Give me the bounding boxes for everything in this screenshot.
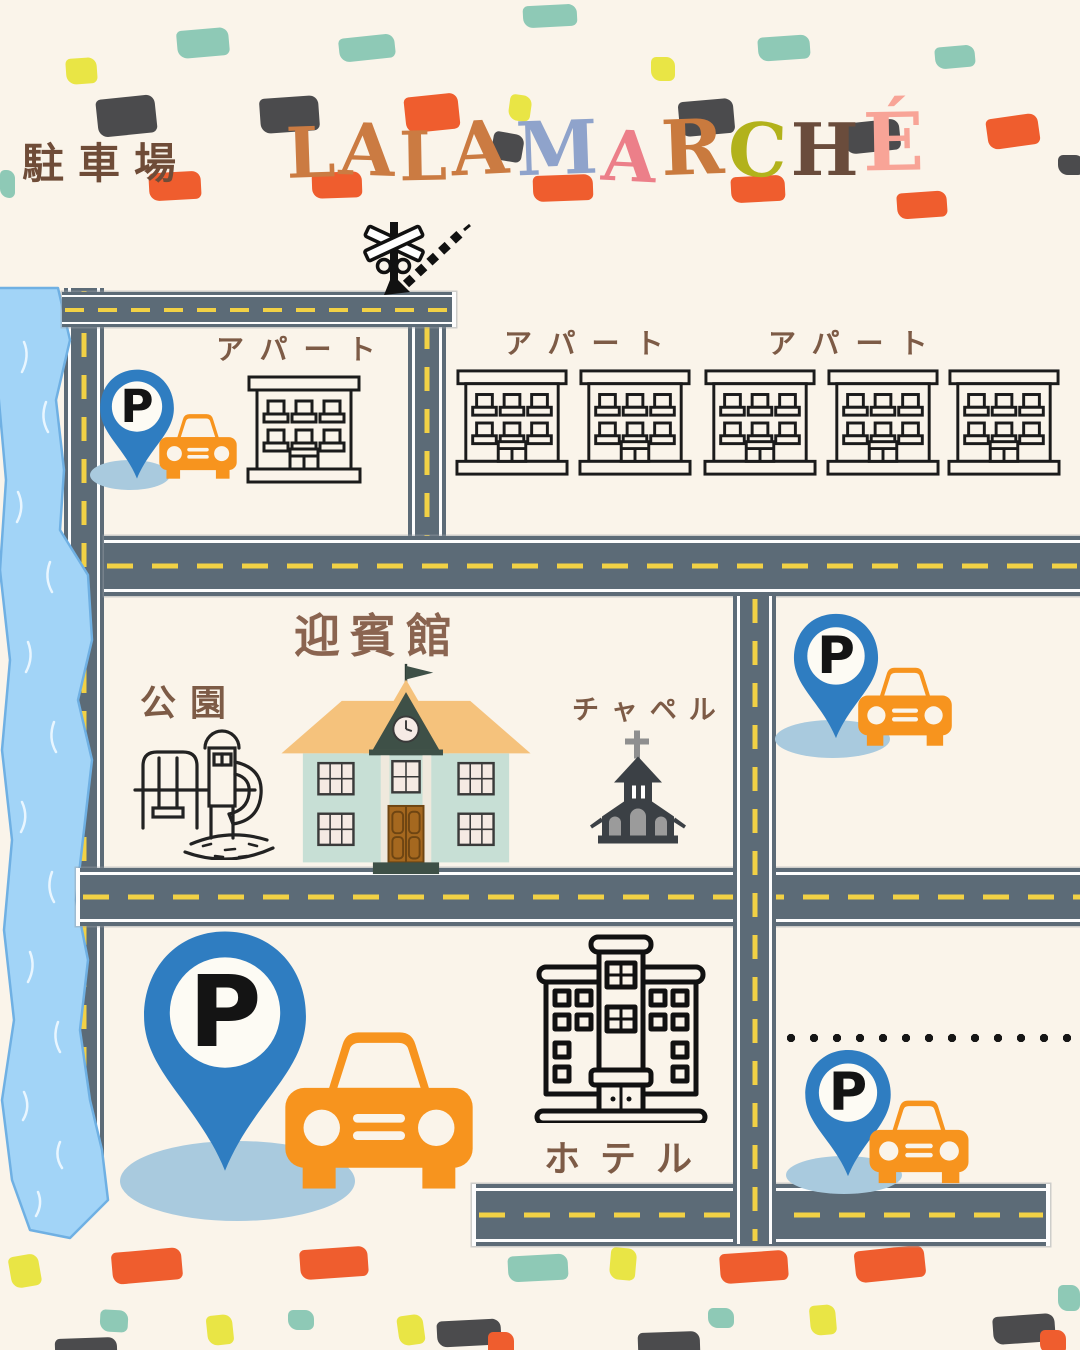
confetti-piece [396, 1313, 426, 1346]
brand-letter: L [399, 125, 448, 190]
label-apartment-2: アパート [504, 322, 679, 362]
brand-letter: M [515, 112, 599, 185]
confetti-piece [1040, 1330, 1066, 1350]
confetti-piece [708, 1308, 734, 1328]
car-icon [864, 1094, 974, 1186]
confetti-piece [638, 1331, 701, 1350]
apartment-building [826, 368, 940, 478]
confetti-piece [854, 1244, 927, 1283]
confetti-piece [55, 1337, 118, 1350]
confetti-piece [99, 1309, 128, 1332]
brand-letter: A [338, 115, 396, 185]
label-hotel: ホテル [544, 1130, 712, 1182]
confetti-piece [488, 1332, 514, 1350]
park-playground-icon [133, 710, 283, 860]
hotel-building [531, 931, 711, 1123]
confetti-piece [985, 113, 1041, 151]
confetti-piece [609, 1247, 638, 1281]
brand-letter: L [285, 119, 337, 187]
parking-letter: P [189, 955, 262, 1070]
label-chapel: チャペル [572, 688, 728, 727]
parking-spot-northwest: P [88, 366, 248, 491]
parking-spot-southeast: P [786, 1046, 981, 1191]
brand-letter: R [659, 111, 725, 185]
apartment-building [245, 375, 363, 485]
confetti-piece [299, 1246, 369, 1281]
label-guest-house: 迎賓館 [294, 600, 462, 666]
road-middle-horizontal [104, 536, 1080, 596]
car-icon [853, 660, 957, 750]
road-upper-middle-vertical [408, 322, 446, 540]
confetti-piece [651, 57, 675, 81]
brand-letter: A [449, 112, 510, 185]
confetti-piece [1058, 1285, 1080, 1311]
brand-letter: A [600, 122, 658, 191]
confetti-piece [507, 1253, 568, 1282]
confetti-piece [288, 1310, 314, 1330]
confetti-piece [338, 33, 396, 63]
road-dash [752, 599, 757, 1241]
brand-letter: H [791, 116, 859, 184]
brand-letter: É [862, 103, 924, 180]
confetti-piece [111, 1247, 184, 1285]
apartment-building [578, 368, 692, 478]
road-right-vertical [733, 596, 776, 1244]
chapel-icon [588, 728, 688, 844]
label-park: 公園 [140, 674, 240, 726]
label-apartment-3: アパート [768, 322, 943, 362]
confetti-piece [65, 57, 98, 85]
apartment-building [947, 368, 1061, 478]
car-icon [272, 1022, 486, 1192]
confetti-piece [206, 1314, 235, 1347]
map-canvas: P P P P 駐車場 LALA MARCHÉ アパート アパート アパート 迎… [0, 0, 1080, 1350]
car-icon [155, 406, 241, 484]
confetti-piece [1058, 155, 1080, 175]
confetti-piece [719, 1250, 789, 1285]
parking-letter: P [829, 1062, 867, 1123]
confetti-piece [7, 1253, 42, 1290]
parking-spot-main: P [118, 923, 490, 1223]
confetti-piece [176, 27, 230, 59]
confetti-piece [896, 190, 948, 219]
parking-spot-east: P [775, 610, 965, 760]
brand-letter: C [726, 115, 787, 187]
parking-letter: P [120, 380, 153, 433]
label-parking-area: 駐車場 [22, 130, 190, 191]
road-dash [65, 308, 449, 312]
railroad-crossing-icon [360, 218, 476, 298]
confetti-piece [934, 44, 976, 69]
parking-letter: P [817, 626, 855, 686]
road-dash [83, 895, 1080, 900]
road-dash [107, 564, 1077, 569]
road-lower-horizontal [76, 868, 1080, 926]
brand-title: LALA MARCHÉ [286, 108, 866, 184]
dotted-path [786, 1033, 1076, 1043]
apartment-building [455, 368, 569, 478]
confetti-piece [0, 170, 15, 198]
label-apartment-1: アパート [216, 328, 391, 368]
road-dash [425, 325, 430, 537]
confetti-piece [809, 1304, 838, 1336]
apartment-building [703, 368, 817, 478]
guest-house-building [278, 660, 534, 876]
confetti-piece [757, 34, 811, 62]
confetti-piece [522, 4, 577, 29]
